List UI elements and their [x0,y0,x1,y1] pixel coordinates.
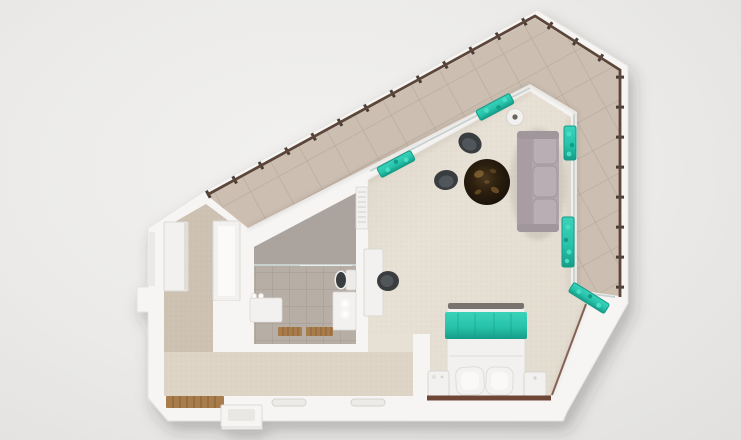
entrance-doormat [166,396,224,408]
wardrobe-right [213,221,240,301]
teal-bed-runner [445,312,527,339]
door-step-recess [228,409,255,421]
bed-foot-rail [448,303,524,309]
nightstand-left [428,371,449,396]
sofa-seat-front [517,131,532,232]
radiator [356,187,368,229]
floorplan-stage [0,0,741,440]
floor-lamp [507,109,524,126]
wardrobe-left-edge [184,223,188,290]
wooden-bath-mat-2 [306,327,333,336]
nightstand-right [524,372,546,396]
wardrobe-right-shelf [218,226,235,296]
entrance-door-step [221,405,262,427]
window-planter-4 [562,217,574,267]
corridor-carpet-texture [164,352,413,396]
pillow-left [455,366,484,395]
desk-chair [377,271,399,291]
double-bed [445,303,527,397]
sofa-armrest-bottom [517,224,559,232]
left-wall-window [149,232,155,286]
bath-bench [250,293,282,322]
window-planter-3 [564,126,576,160]
wardrobe-left [164,222,188,291]
pillow-right-puff [491,372,509,391]
sofa-armrest-top [517,131,559,139]
vanity-sink [333,292,356,330]
floorplan-canvas [0,0,741,440]
toilet-paper-roll-1 [251,293,256,298]
round-rug [464,159,510,205]
sofa [517,131,559,232]
wooden-bath-mat-1 [278,327,302,336]
pillow-right [486,367,514,396]
pillow-left-puff [461,372,480,391]
threshold-vent-2 [351,399,385,406]
toilet [335,270,357,290]
toilet-paper-roll-2 [258,293,263,298]
hall-bath-wall [213,301,240,352]
threshold-vent-1 [272,399,306,406]
sofa-cushion-2 [533,166,557,197]
